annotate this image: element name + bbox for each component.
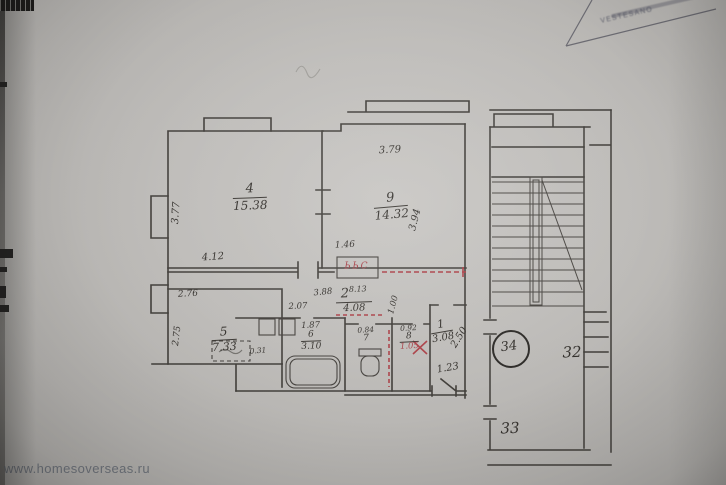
sink-icon <box>259 319 275 335</box>
room7-number: 7 <box>358 334 375 344</box>
room5-number: 5 <box>211 325 236 341</box>
fixtures <box>212 257 381 388</box>
floor-plan-drawing <box>0 0 726 485</box>
watermark: www.homesoverseas.ru <box>4 461 150 476</box>
dim-3-79: 3.79 <box>379 145 402 157</box>
room9-label: 9 14.32 <box>373 190 410 222</box>
dim-2-07: 2.07 <box>288 302 307 312</box>
apartment-walls <box>151 101 469 398</box>
apartment-number: 34 <box>500 339 518 355</box>
room4-label: 4 15.38 <box>232 182 267 212</box>
red-closet-mark: ЬЬС <box>344 262 369 271</box>
room8-bottom-dim: 1.05 <box>400 342 419 352</box>
room2-width-dim: 4.08 <box>336 302 372 315</box>
toilet-tank-icon <box>359 349 381 356</box>
dim-2-76: 2.76 <box>178 290 199 300</box>
room2-label: 28.13 4.08 <box>335 285 372 315</box>
stair-stringer <box>530 177 542 305</box>
room6-area: 3.10 <box>301 342 321 353</box>
apt-32-number: 32 <box>562 345 582 361</box>
dim-0-31: 0.31 <box>249 346 266 355</box>
room6-number: 6 <box>301 330 321 342</box>
stairwell-walls <box>484 110 611 465</box>
toilet-bowl-icon <box>361 356 379 376</box>
room7-label: 0.84 7 <box>357 326 375 344</box>
apt-33-number: 33 <box>500 421 520 437</box>
bathtub-rim <box>290 359 337 385</box>
room4-area: 15.38 <box>233 197 268 212</box>
bathtub-icon <box>286 356 340 388</box>
room8-label: 0.92 8 1.05 <box>399 324 419 352</box>
dim-4-12: 4.12 <box>202 252 225 264</box>
room9-area: 14.32 <box>374 206 409 223</box>
room6-label: 1.87 6 3.10 <box>300 321 321 352</box>
room5-label: 5 7.33 <box>211 325 237 353</box>
stair-diagonal <box>542 180 582 290</box>
room2-area: 8.13 <box>349 284 367 294</box>
pencil-scribble <box>296 66 320 77</box>
dim-1-46: 1.46 <box>335 241 356 251</box>
stair-treads <box>492 177 584 306</box>
room5-area: 7.33 <box>212 339 237 353</box>
dim-3-88: 3.88 <box>313 288 333 299</box>
scanned-floorplan-photo: 4 15.38 9 14.32 5 7.33 28.13 4.08 1.87 6… <box>0 0 726 485</box>
dim-3-77: 3.77 <box>171 202 183 225</box>
room4-number: 4 <box>232 182 267 199</box>
